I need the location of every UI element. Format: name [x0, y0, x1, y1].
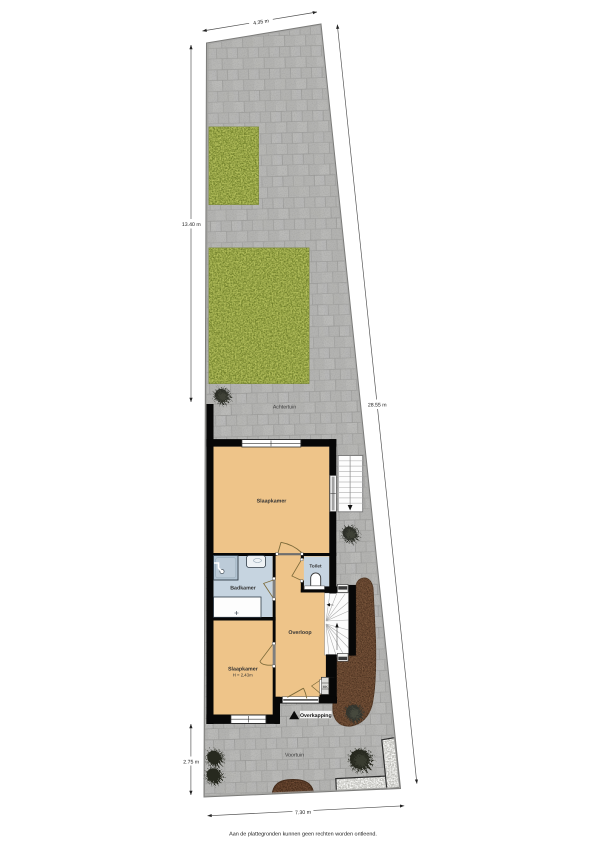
- svg-text:Slaapkamer: Slaapkamer: [257, 498, 287, 504]
- svg-text:MK: MK: [323, 685, 329, 689]
- svg-text:Achtertuin: Achtertuin: [273, 404, 296, 410]
- svg-text:Overloop: Overloop: [288, 630, 312, 636]
- svg-text:Voortuin: Voortuin: [285, 752, 304, 758]
- svg-text:Toilet: Toilet: [309, 563, 322, 568]
- svg-text:Aan de plattegronden kunnen ge: Aan de plattegronden kunnen geen rechten…: [229, 832, 377, 838]
- svg-text:Overkapping: Overkapping: [300, 713, 332, 719]
- svg-text:2.75 m: 2.75 m: [183, 759, 199, 765]
- svg-text:28.55 m: 28.55 m: [368, 402, 387, 408]
- svg-text:Badkamer: Badkamer: [230, 585, 256, 591]
- svg-text:H = 2,43m: H = 2,43m: [233, 673, 253, 678]
- svg-text:Slaapkamer: Slaapkamer: [228, 666, 258, 672]
- svg-text:13.40 m: 13.40 m: [182, 222, 201, 228]
- svg-text:7.30 m: 7.30 m: [295, 810, 311, 817]
